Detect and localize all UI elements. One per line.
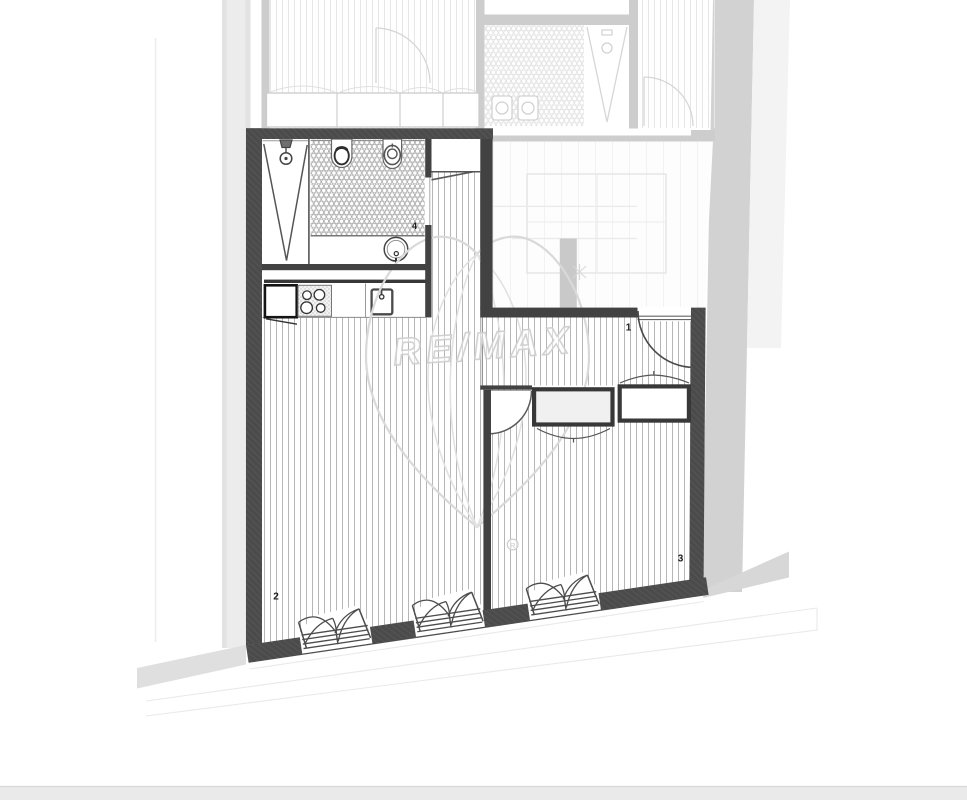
svg-text:3: 3 <box>678 554 684 565</box>
svg-text:1: 1 <box>626 323 632 334</box>
svg-text:2: 2 <box>273 592 279 603</box>
svg-text:R: R <box>510 541 516 550</box>
svg-text:4: 4 <box>412 221 417 231</box>
